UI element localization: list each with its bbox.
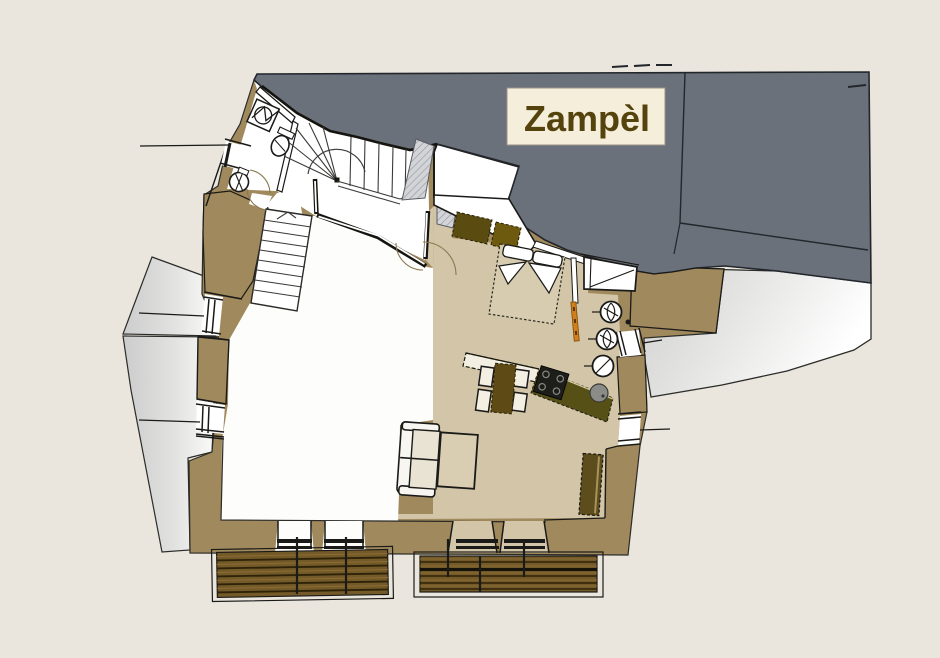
svg-text:Zampèl: Zampèl xyxy=(524,98,650,139)
